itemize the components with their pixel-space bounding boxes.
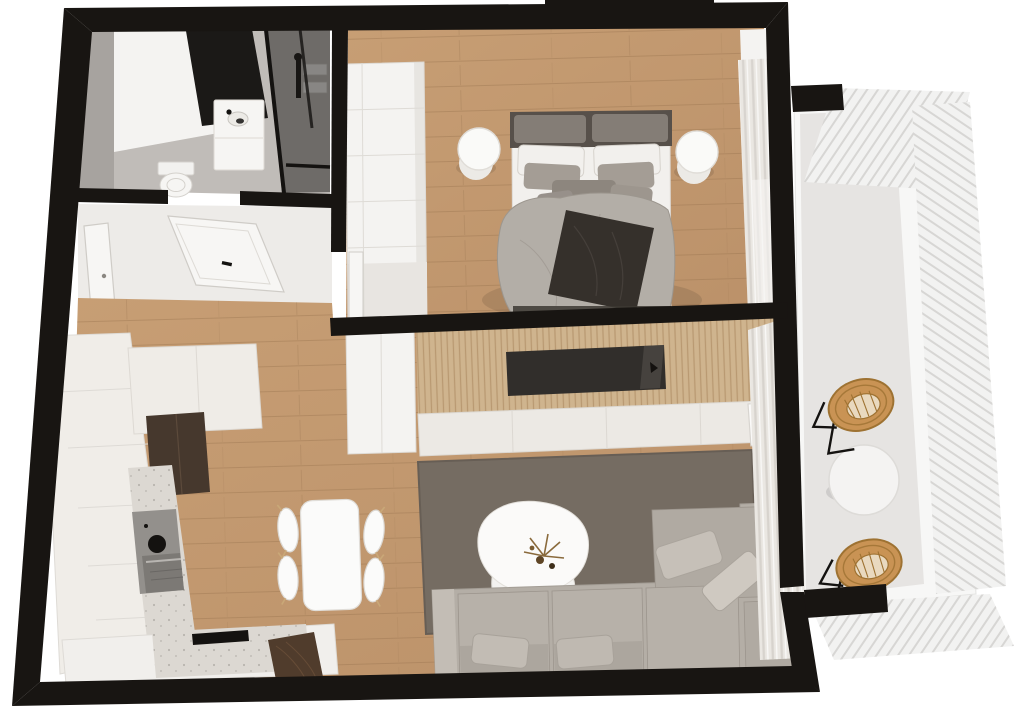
floor-plan-render: Balcony Round balcony table Rattan chair…	[0, 0, 1024, 725]
wall-bathroom-bedroom	[331, 28, 348, 252]
room-bathroom: Bathroom Dark mirror panel Bathroom vani…	[76, 29, 330, 197]
balcony-table: Round balcony table	[829, 445, 899, 515]
dining-table: Dining table	[300, 499, 362, 611]
tv-slat-wall: Recessed TV in slatted wall	[416, 317, 790, 414]
room-bedroom: Bedroom Wardrobe Bedroom door Double bed	[346, 27, 790, 328]
oven-cooktop: Oven and cooktop	[132, 509, 184, 594]
balcony: Balcony Round balcony table Rattan chair…	[794, 88, 1014, 660]
wall-stub-balcony-bottom	[804, 584, 888, 618]
bedroom-door: Bedroom door	[349, 252, 363, 318]
floor-plan-svg: Balcony Round balcony table Rattan chair…	[0, 0, 1024, 725]
wall-bathroom-bottom-left	[76, 188, 168, 204]
living-closet	[346, 330, 416, 454]
wall-bathroom-bottom-right	[240, 191, 332, 208]
vanity: Bathroom vanity	[214, 100, 264, 170]
throw-blanket	[548, 210, 654, 312]
faucet	[226, 109, 231, 114]
wall-stub-balcony-top	[791, 84, 844, 112]
wall-top-protrusion	[545, 0, 714, 11]
bed: Double bed	[482, 110, 702, 328]
